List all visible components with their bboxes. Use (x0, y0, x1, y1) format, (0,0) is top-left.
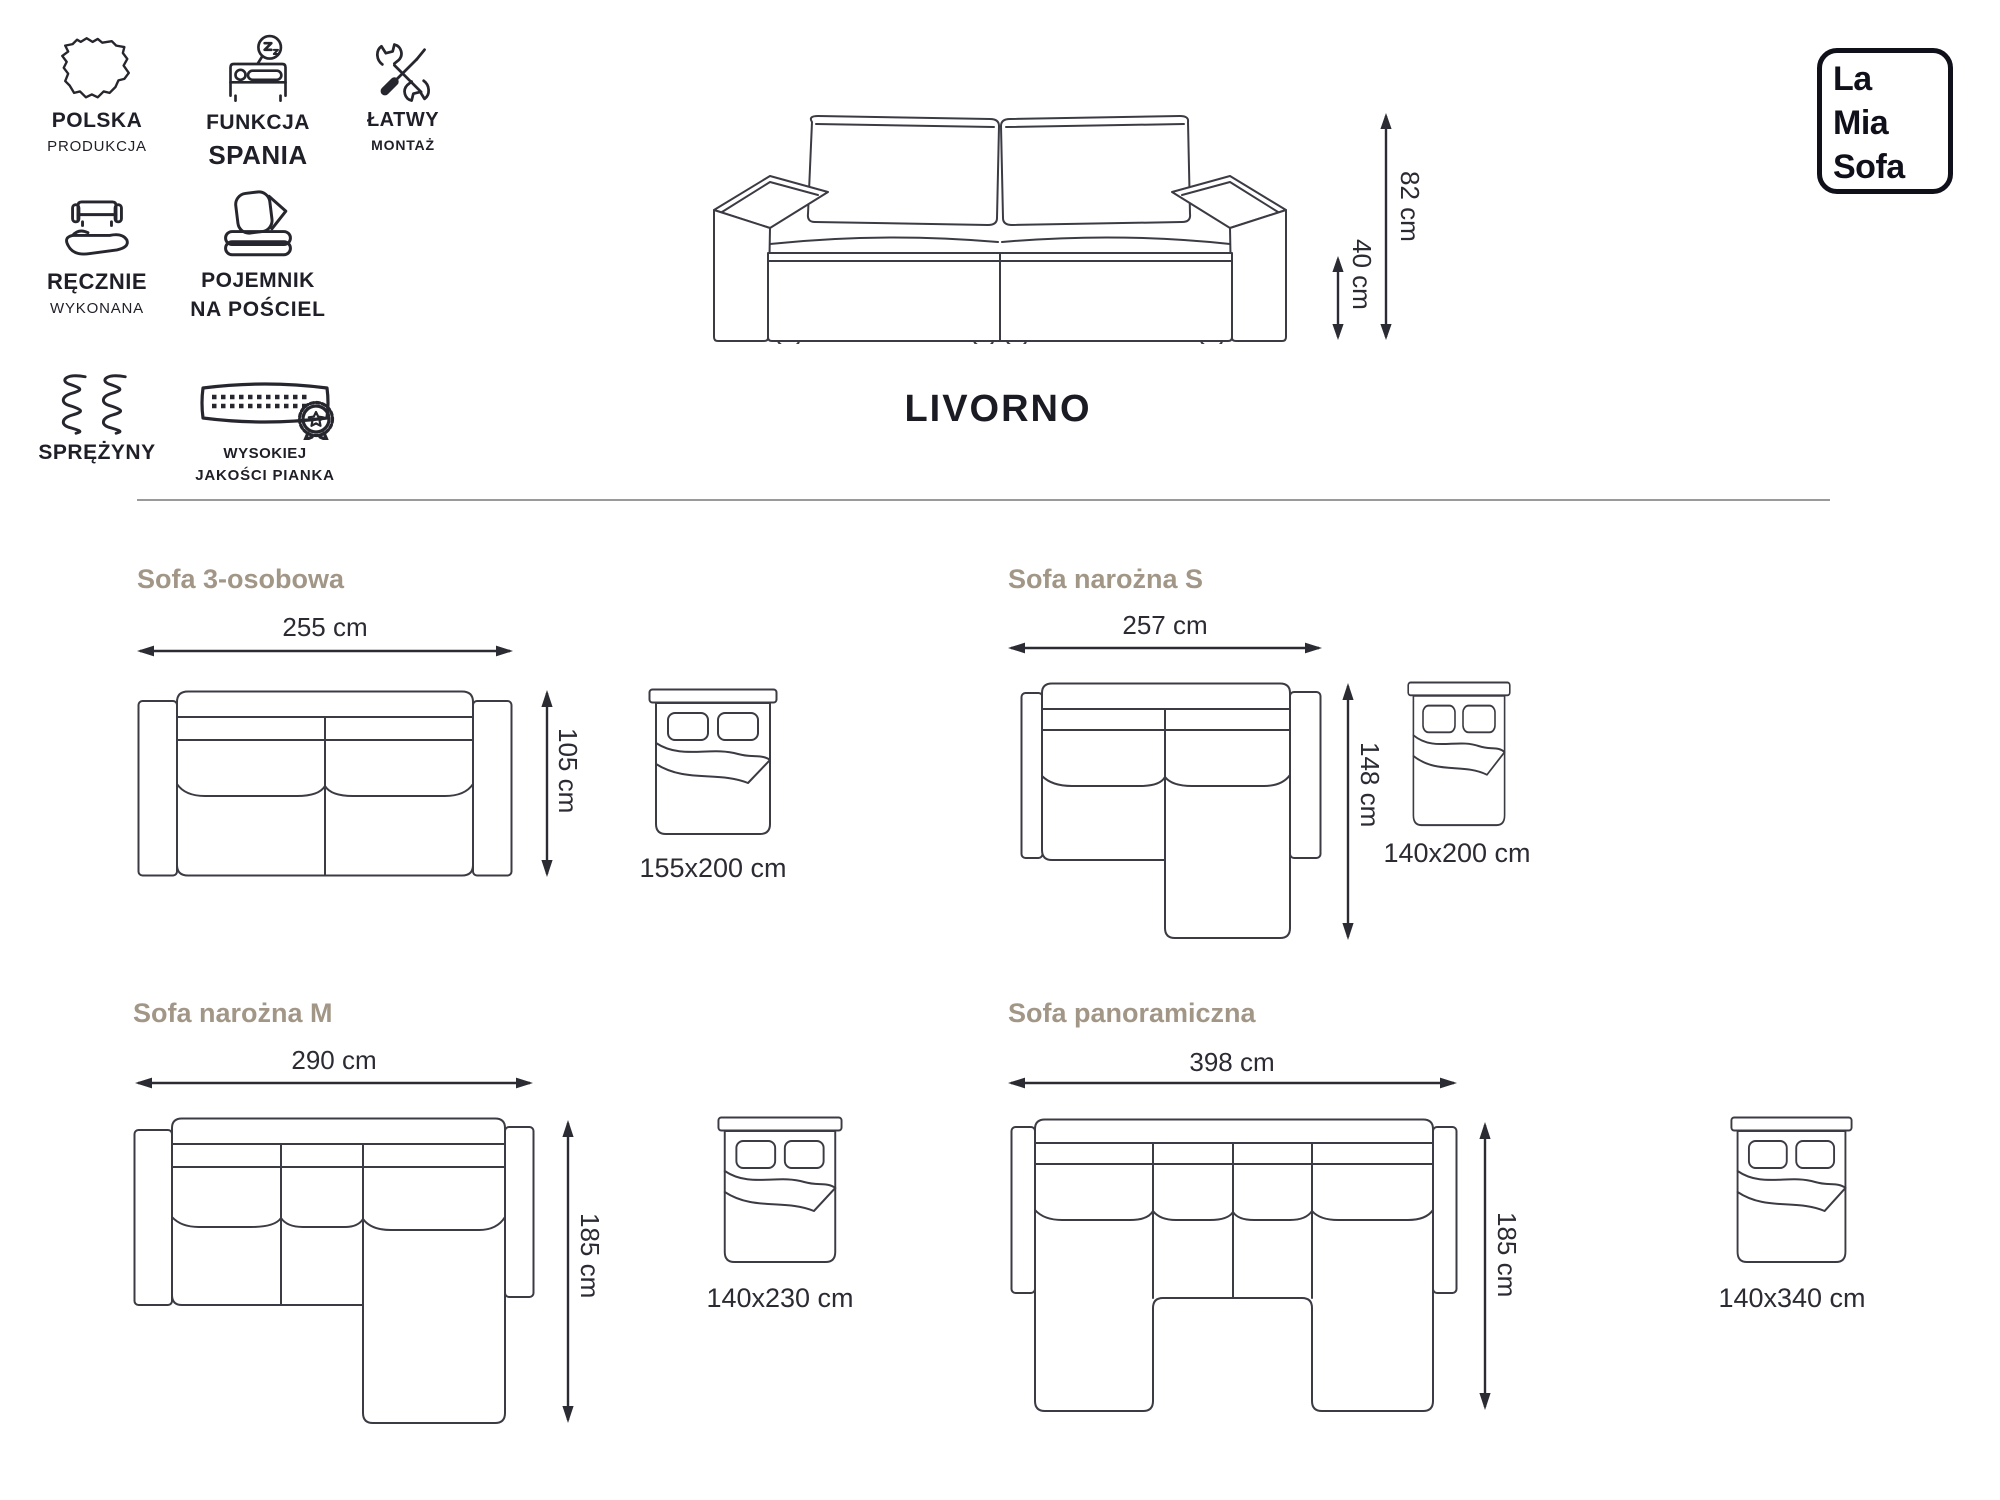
variant-depth-label: 148 cm (1354, 742, 1385, 827)
bed-size-label: 140x230 cm (690, 1283, 870, 1314)
feature-sublabel: SPANIA (208, 140, 307, 171)
seat-height-dimension-arrow (1330, 256, 1346, 340)
feature-sublabel: PRODUKCJA (47, 138, 147, 155)
feature-label: WYSOKIEJ (223, 445, 306, 462)
feature-label: FUNKCJA (206, 111, 310, 135)
springs-icon (56, 374, 138, 436)
poland-map-icon (60, 36, 134, 104)
sofa-top-view-3-osobowa (137, 690, 513, 877)
hand-sofa-icon (59, 196, 135, 264)
variant-width-label: 398 cm (1132, 1047, 1332, 1078)
feature-polska-produkcja: POLSKA PRODUKCJA (12, 36, 182, 155)
variant-depth-label: 185 cm (1491, 1212, 1522, 1297)
width-dimension-arrow (137, 644, 513, 658)
variant-width-label: 290 cm (234, 1045, 434, 1076)
feature-sublabel: MONTAŻ (371, 137, 435, 153)
bed-size-icon (717, 1116, 843, 1268)
bed-size-label: 155x200 cm (623, 853, 803, 884)
sofa-top-view-panoramiczna (1010, 1118, 1458, 1413)
feature-label: RĘCZNIE (47, 269, 147, 295)
variant-title-sofa-narozna-s: Sofa narożna S (1008, 564, 1203, 595)
feature-sublabel: WYKONANA (50, 300, 144, 317)
sofa-top-view-narozna-s (1020, 682, 1322, 940)
feature-sublabel: NA POŚCIEL (190, 298, 326, 322)
bed-size-icon (1730, 1116, 1853, 1268)
variant-depth-label: 105 cm (552, 728, 583, 813)
feature-label: POJEMNIK (201, 269, 315, 293)
total-height-dimension-label: 82 cm (1394, 171, 1425, 242)
bed-size-icon (648, 688, 778, 840)
bedding-storage-icon (220, 188, 296, 264)
total-height-dimension-arrow (1378, 113, 1394, 340)
brand-logo-line: Mia (1833, 101, 1948, 145)
seat-height-dimension-label: 40 cm (1346, 239, 1377, 310)
foam-quality-icon (195, 378, 335, 440)
sleep-function-icon (218, 32, 298, 106)
width-dimension-arrow (1008, 641, 1322, 655)
variant-title-sofa-narozna-m: Sofa narożna M (133, 998, 333, 1029)
brand-logo-line: Sofa (1833, 145, 1948, 189)
variant-width-label: 255 cm (225, 612, 425, 643)
bed-size-label: 140x340 cm (1702, 1283, 1882, 1314)
variant-title-sofa-3-osobowa: Sofa 3-osobowa (137, 564, 344, 595)
brand-logo: La Mia Sofa (1817, 48, 1953, 194)
feature-wysokiej-jakosci-pianka: WYSOKIEJ JAKOŚCI PIANKA (180, 378, 350, 484)
bed-size-label: 140x200 cm (1367, 838, 1547, 869)
sofa-front-view-drawing (712, 112, 1288, 344)
variant-depth-label: 185 cm (574, 1213, 605, 1298)
feature-pojemnik-na-posciel: POJEMNIK NA POŚCIEL (173, 188, 343, 322)
variant-title-sofa-panoramiczna: Sofa panoramiczna (1008, 998, 1256, 1029)
feature-label: SPRĘŻYNY (38, 441, 155, 465)
feature-sublabel: JAKOŚCI PIANKA (195, 467, 335, 484)
feature-sprezyny: SPRĘŻYNY (12, 374, 182, 465)
width-dimension-arrow (135, 1076, 533, 1090)
spec-sheet: POLSKA PRODUKCJA FUNKCJA SPANIA (0, 0, 2000, 1500)
feature-label: ŁATWY (367, 109, 439, 132)
width-dimension-arrow (1008, 1076, 1457, 1090)
sofa-top-view-narozna-m (133, 1117, 535, 1425)
tools-icon (372, 42, 434, 104)
variant-width-label: 257 cm (1065, 610, 1265, 641)
bed-size-icon (1407, 681, 1511, 831)
feature-latwy-montaz: ŁATWY MONTAŻ (318, 42, 488, 153)
feature-label: POLSKA (52, 109, 143, 133)
feature-recznie-wykonana: RĘCZNIE WYKONANA (12, 196, 182, 317)
brand-logo-line: La (1833, 57, 1948, 101)
product-title: LIVORNO (838, 388, 1158, 431)
section-divider (137, 499, 1830, 501)
